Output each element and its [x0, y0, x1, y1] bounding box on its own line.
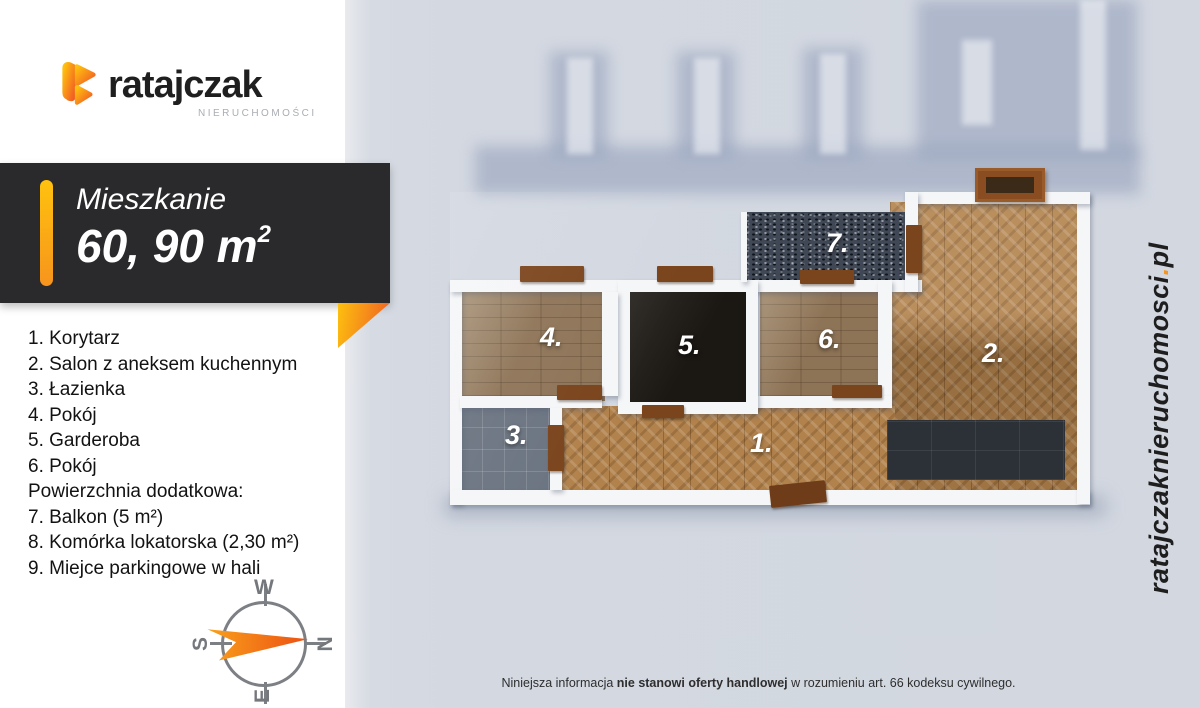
floorplan-scene: 1. 2. 3. 4. 5. 6. 7. ratajczaknieruchomo… [345, 0, 1200, 708]
list-item: 7. Balkon (5 m²) [28, 505, 338, 531]
compass-rose: W N S E [198, 580, 338, 708]
area-superscript: 2 [258, 221, 271, 248]
list-item: 2. Salon z aneksem kuchennym [28, 352, 338, 378]
planter-interior [986, 177, 1034, 193]
compass-west-label: W [254, 576, 274, 600]
disclaimer-bold: nie stanowi oferty handlowej [617, 676, 788, 690]
compass-north-label: N [312, 636, 336, 651]
wall-right [1077, 192, 1090, 504]
floor-plan: 1. 2. 3. 4. 5. 6. 7. [450, 192, 1090, 505]
skylight-highlight [694, 58, 720, 154]
skylight-highlight [1080, 0, 1106, 150]
list-item: 6. Pokój [28, 454, 338, 480]
room-label-6: 6. [818, 324, 841, 355]
list-item: 3. Łazienka [28, 377, 338, 403]
room-label-1: 1. [750, 428, 773, 459]
window-door-pokoj4 [520, 266, 584, 282]
brand-subtitle: NIERUCHOMOŚCI [198, 108, 317, 119]
flyer: 1. 2. 3. 4. 5. 6. 7. ratajczaknieruchomo… [0, 0, 1200, 708]
window-planter-box [975, 168, 1045, 202]
list-item: 9. Miejce parkingowe w hali [28, 556, 338, 582]
list-item: 1. Korytarz [28, 326, 338, 352]
wall-salon-pokoj6 [878, 280, 892, 398]
legal-disclaimer: Niniejsza informacja nie stanowi oferty … [345, 676, 1172, 690]
watermark-dot: . [1144, 267, 1174, 275]
list-item: 5. Garderoba [28, 428, 338, 454]
list-item: Powierzchnia dodatkowa: [28, 479, 338, 505]
disclaimer-post: w rozumieniu art. 66 kodeksu cywilnego. [788, 676, 1016, 690]
window-door-garderoba [657, 266, 713, 282]
info-panel: ratajczak NIERUCHOMOŚCI Mieszkanie 60, 9… [0, 0, 345, 708]
door-pokoj4-korytarz [557, 385, 602, 400]
area-value: 60, 90 m [76, 220, 258, 272]
door-pokoj6-korytarz [832, 385, 882, 398]
area-badge: Mieszkanie 60, 90 m2 [0, 163, 390, 303]
company-logo: ratajczak NIERUCHOMOŚCI [56, 58, 306, 118]
compass-tick [210, 642, 232, 645]
website-watermark: ratajczaknieruchomosci.pl [1144, 242, 1175, 594]
room-label-5: 5. [678, 330, 701, 361]
skylight-highlight [962, 40, 992, 125]
accent-bar [40, 180, 53, 286]
door-lazienka [548, 425, 564, 471]
compass-east-label: E [251, 689, 275, 703]
room-korytarz-floor [555, 406, 895, 494]
watermark-site: ratajczaknieruchomosci [1144, 275, 1174, 594]
badge-area: 60, 90 m2 [76, 219, 271, 273]
compass-south-label: S [189, 637, 213, 651]
list-item: 4. Pokój [28, 403, 338, 429]
room-label-4: 4. [540, 322, 563, 353]
door-pokoj6-balkon [800, 270, 854, 284]
room-label-7: 7. [826, 228, 849, 259]
list-item: 8. Komórka lokatorska (2,30 m²) [28, 530, 338, 556]
skylight-highlight [820, 54, 846, 154]
door-salon-balkon [906, 225, 922, 273]
room-label-2: 2. [982, 338, 1005, 369]
room-list: 1. Korytarz 2. Salon z aneksem kuchennym… [28, 326, 338, 581]
kitchen-tile-floor [887, 420, 1065, 480]
wall-left [450, 280, 462, 504]
wall-pokoj4-garderoba [602, 292, 618, 396]
watermark-tld: pl [1144, 242, 1174, 267]
disclaimer-pre: Niniejsza informacja [501, 676, 616, 690]
door-garderoba-korytarz [642, 405, 684, 418]
room-label-3: 3. [505, 420, 528, 451]
badge-title: Mieszkanie [76, 183, 226, 217]
balkon-edge [741, 212, 747, 282]
skylight-highlight [567, 58, 593, 154]
brand-name: ratajczak [108, 64, 262, 107]
ratajczak-ribbon-icon [56, 58, 102, 110]
